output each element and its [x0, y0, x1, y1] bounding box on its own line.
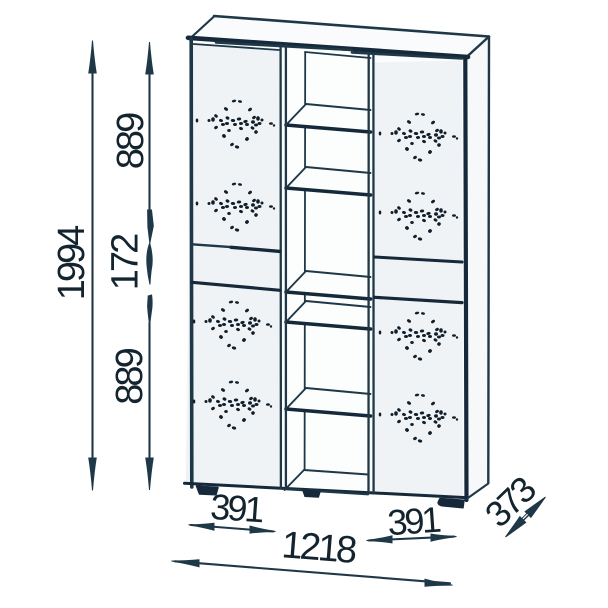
svg-text:1218: 1218 [280, 524, 357, 572]
svg-text:172: 172 [105, 234, 147, 290]
svg-text:391: 391 [209, 486, 265, 531]
svg-text:1994: 1994 [51, 225, 93, 300]
svg-text:889: 889 [109, 348, 151, 404]
svg-text:391: 391 [386, 499, 442, 544]
svg-text:889: 889 [110, 113, 152, 169]
